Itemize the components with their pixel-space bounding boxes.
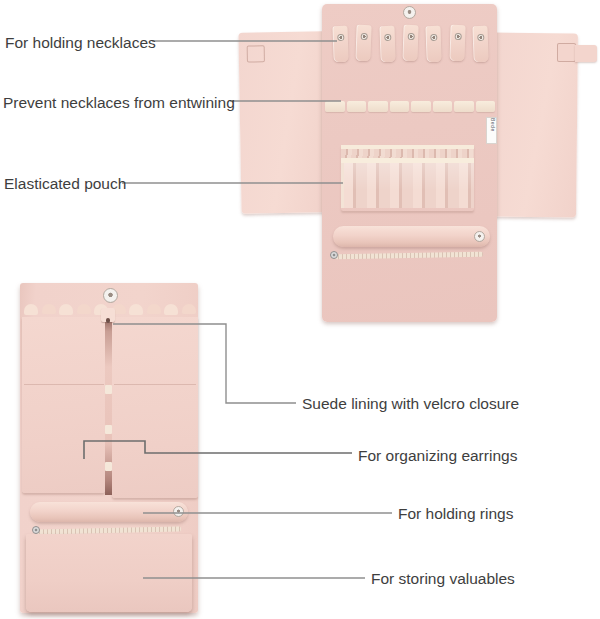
flap-seam	[24, 384, 104, 385]
ring-bar	[333, 226, 490, 247]
necklace-hook-strap	[356, 25, 372, 62]
brand-tag-text: Bede	[488, 118, 497, 132]
folded-right-flap	[112, 317, 198, 498]
folded-ring-bar-snap	[173, 506, 184, 517]
jewelry-organizer-annotated-image: Bede	[0, 0, 600, 619]
hook-snap	[454, 33, 461, 40]
gap-divider-segment	[105, 462, 112, 471]
folded-left-flap	[22, 317, 105, 493]
valuables-pouch	[26, 534, 192, 612]
necklace-hook-strap	[402, 25, 418, 62]
top-snap-button	[403, 6, 416, 19]
folded-top-snap	[103, 288, 118, 303]
label-elasticated-pouch: Elasticated pouch	[4, 174, 126, 193]
scallop	[77, 304, 91, 314]
photo-folded-organizer	[0, 270, 300, 619]
anti-tangle-strip	[325, 101, 495, 112]
brand-tag: Bede	[486, 117, 497, 144]
strip-segment	[411, 101, 431, 112]
label-storing-valuables: For storing valuables	[371, 569, 515, 588]
pouch-pleated-fabric	[341, 163, 474, 208]
elasticated-pouch	[341, 145, 474, 211]
label-prevent-entwining: Prevent necklaces from entwining	[3, 93, 235, 112]
strip-segment	[454, 101, 474, 112]
strap-stitch-square	[557, 43, 576, 62]
hook-snap	[337, 34, 344, 41]
hook-snap	[407, 33, 414, 40]
strip-segment	[476, 101, 496, 112]
scallop	[182, 304, 196, 314]
hook-snap	[477, 34, 484, 41]
label-holding-rings: For holding rings	[398, 504, 513, 523]
scallop	[164, 304, 178, 315]
strip-segment	[368, 101, 388, 112]
strip-segment	[347, 101, 367, 112]
folded-ring-bar	[30, 502, 188, 522]
strip-segment	[433, 101, 453, 112]
hook-snap	[383, 34, 390, 41]
center-gap-suede-lining	[105, 317, 112, 495]
gap-divider-segment	[105, 425, 112, 434]
scallop	[147, 304, 161, 314]
scallop	[59, 304, 73, 315]
necklace-hook-strap	[472, 26, 488, 63]
velcro-snap-dot	[106, 318, 110, 323]
scallop	[24, 304, 38, 315]
strip-segment	[390, 101, 410, 112]
hanging-strap	[575, 45, 597, 62]
zipper-pull	[330, 251, 338, 259]
necklace-hook-strap	[426, 26, 442, 63]
pouch-ruched-trim	[341, 149, 474, 158]
hook-snap	[430, 34, 437, 41]
hook-snap	[360, 33, 367, 40]
necklace-hook-strap	[332, 26, 348, 63]
scallop	[129, 304, 143, 315]
left-flap-stitch-square	[247, 45, 265, 62]
necklace-hook-strap	[379, 26, 395, 63]
flap-seam	[114, 384, 196, 385]
label-holding-necklaces: For holding necklaces	[5, 33, 156, 52]
necklace-hook-strap	[449, 25, 465, 62]
gap-divider-segment	[105, 385, 112, 394]
left-side-flap	[238, 31, 326, 213]
folded-zipper-pull	[32, 526, 40, 534]
label-organizing-earrings: For organizing earrings	[358, 446, 517, 465]
strip-segment	[325, 101, 345, 112]
ring-bar-snap	[474, 231, 485, 242]
scallop	[42, 304, 56, 314]
label-suede-lining: Suede lining with velcro closure	[302, 394, 519, 413]
necklace-hook-row	[333, 25, 488, 63]
